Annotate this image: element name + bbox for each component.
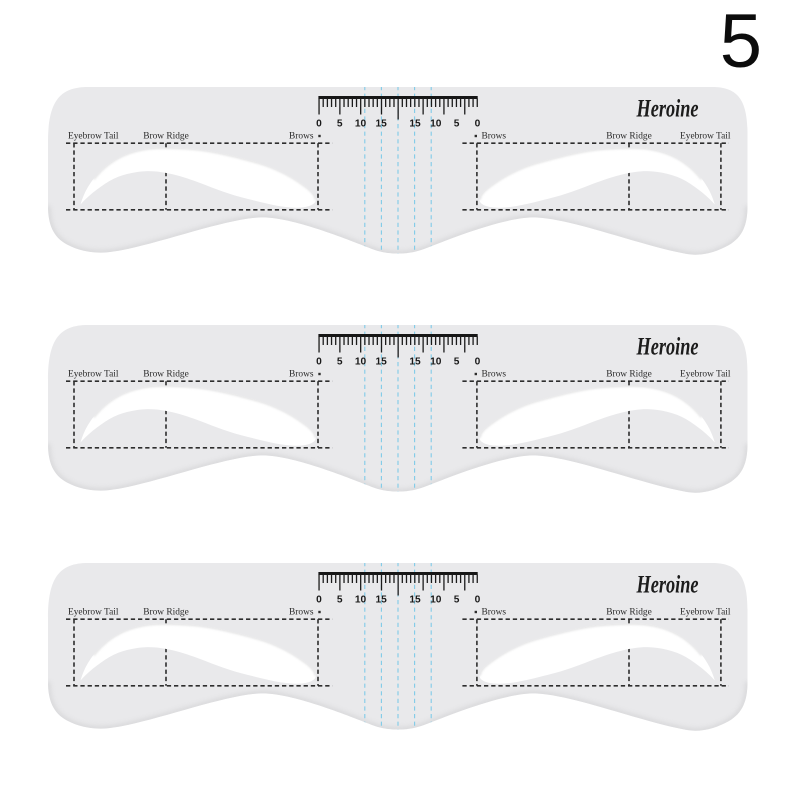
- svg-text:5: 5: [720, 0, 762, 84]
